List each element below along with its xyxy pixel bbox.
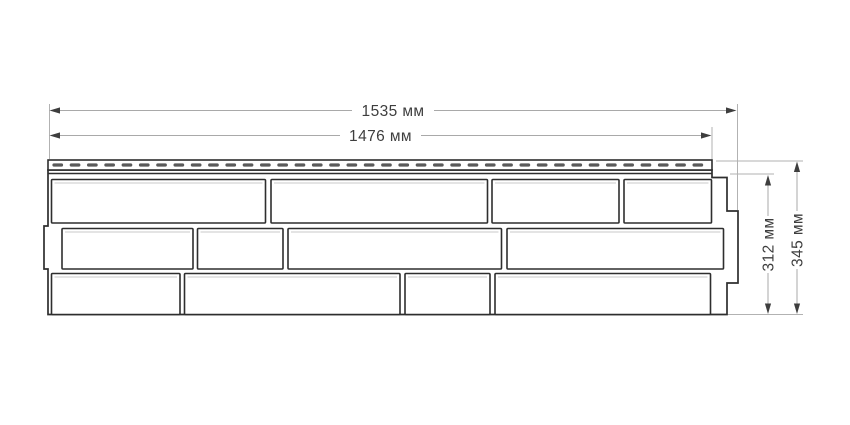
arrow-up xyxy=(794,162,800,173)
stone xyxy=(62,229,193,270)
stone xyxy=(52,180,266,224)
dim-label-total-height: 345 мм xyxy=(790,213,807,267)
stone xyxy=(495,274,711,315)
stone-row-2 xyxy=(62,229,724,270)
dim-label-total-width: 1535 мм xyxy=(362,103,425,120)
arrow-left xyxy=(50,132,61,138)
stone xyxy=(624,180,712,224)
stone-row-3 xyxy=(52,274,711,315)
nail-strip xyxy=(48,160,712,170)
stone xyxy=(271,180,488,224)
stone xyxy=(405,274,490,315)
stone xyxy=(288,229,502,270)
stone xyxy=(492,180,619,224)
arrow-right xyxy=(701,132,712,138)
stone xyxy=(198,229,284,270)
stone-row-1 xyxy=(52,180,712,224)
stone xyxy=(185,274,401,315)
stone xyxy=(507,229,724,270)
arrow-down xyxy=(794,304,800,315)
arrow-up xyxy=(765,175,771,186)
dim-total-height: 345 мм xyxy=(790,162,807,315)
panel-dimension-drawing: 1535 мм 1476 мм 312 мм 34 xyxy=(0,0,850,425)
arrow-right xyxy=(726,107,737,113)
dim-body-height: 312 мм xyxy=(761,175,778,314)
dim-total-width: 1535 мм xyxy=(50,103,737,120)
dim-nail-strip-width: 1476 мм xyxy=(50,128,712,145)
arrow-left xyxy=(50,107,61,113)
dim-label-nail-strip-width: 1476 мм xyxy=(349,128,412,145)
arrow-down xyxy=(765,304,771,315)
dim-label-body-height: 312 мм xyxy=(761,218,778,272)
diagram-canvas: 1535 мм 1476 мм 312 мм 34 xyxy=(0,0,850,425)
stone xyxy=(52,274,181,315)
